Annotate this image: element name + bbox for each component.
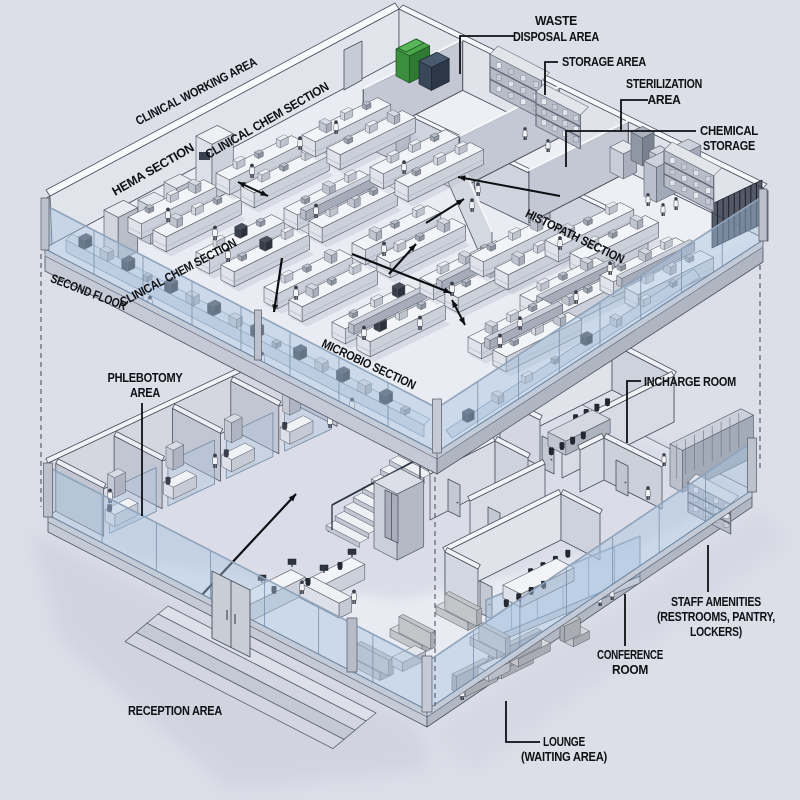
svg-text:STORAGE AREA: STORAGE AREA bbox=[562, 54, 647, 69]
svg-text:CHEMICAL: CHEMICAL bbox=[700, 123, 758, 138]
svg-text:INCHARGE ROOM: INCHARGE ROOM bbox=[644, 374, 736, 389]
svg-text:STORAGE: STORAGE bbox=[703, 138, 756, 153]
svg-text:DISPOSAL AREA: DISPOSAL AREA bbox=[513, 29, 600, 44]
svg-text:LOUNGE: LOUNGE bbox=[543, 734, 585, 749]
svg-text:AREA: AREA bbox=[648, 92, 682, 107]
svg-text:AREA: AREA bbox=[130, 385, 161, 400]
svg-text:(WAITING AREA): (WAITING AREA) bbox=[521, 749, 607, 764]
svg-text:WASTE: WASTE bbox=[535, 13, 578, 28]
svg-text:LOCKERS): LOCKERS) bbox=[690, 624, 742, 639]
svg-text:PHLEBOTOMY: PHLEBOTOMY bbox=[108, 370, 184, 385]
svg-text:STERILIZATION: STERILIZATION bbox=[626, 76, 702, 91]
svg-text:(RESTROOMS, PANTRY,: (RESTROOMS, PANTRY, bbox=[657, 609, 775, 624]
svg-text:CONFERENCE: CONFERENCE bbox=[597, 647, 663, 662]
svg-text:STAFF AMENITIES: STAFF AMENITIES bbox=[671, 594, 762, 609]
svg-text:ROOM: ROOM bbox=[612, 662, 648, 677]
svg-text:RECEPTION AREA: RECEPTION AREA bbox=[128, 703, 223, 718]
